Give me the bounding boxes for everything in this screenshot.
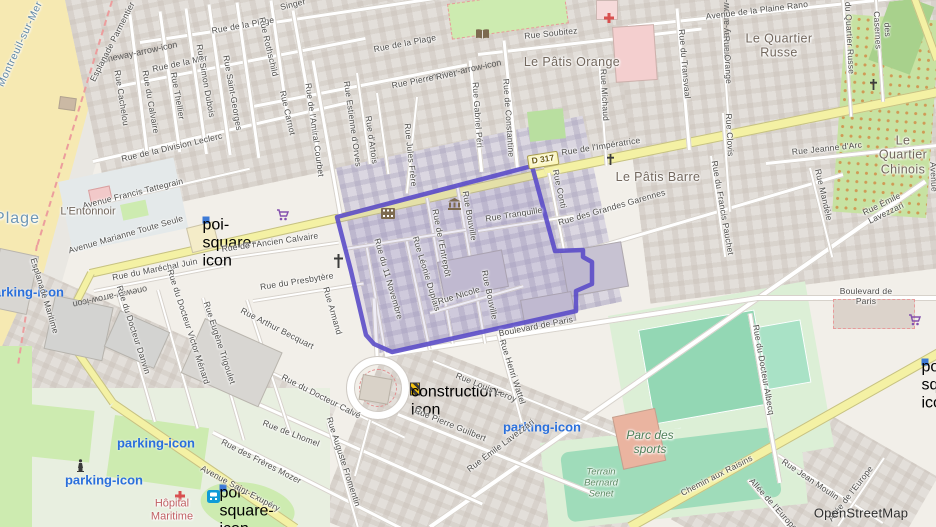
street-label-rue-des-casernes: des Casernes — [871, 3, 893, 58]
street-label-avenue-partial: Avenue — [927, 162, 936, 192]
attribution-attribution[interactable]: OpenStreetMap — [814, 507, 908, 522]
poi-square-icon: poi-square-icon — [922, 359, 929, 366]
street-label-rue-orange: Rue Orange — [721, 36, 733, 85]
roundabout-building — [358, 374, 392, 405]
parking-icon: parking-icon — [117, 436, 195, 451]
place-label-hopital-maritime: Hôpital Maritime — [151, 497, 193, 522]
place-label-le-quartier-russe: Le Quartier Russe — [746, 32, 813, 61]
place-label-plage: Plage — [0, 210, 40, 228]
green-strip — [0, 346, 32, 527]
square-green — [527, 108, 566, 142]
place-label-parc-des-sports: Parc des sports — [626, 429, 673, 457]
building — [612, 24, 658, 83]
place-label-terrain-bernard-senet: Terrain Bernard Senet — [584, 468, 618, 501]
place-label-le-patis-barre: Le Pâtis Barre — [616, 170, 701, 184]
building — [58, 96, 77, 111]
parking-icon: parking-icon — [0, 285, 64, 300]
poi-square-icon: poi-square-icon — [203, 217, 210, 224]
place-label-le-quartier-chinois: Le Quartier Chinois — [879, 133, 927, 176]
construction-icon: construction-icon — [410, 383, 420, 396]
parking-icon: parking-icon — [65, 473, 143, 488]
street-label-boulevard-de-paris-e: Boulevard de Paris — [831, 287, 901, 307]
place-label-l-entonnoir: L'Entonnoir — [60, 206, 115, 219]
street-label-rue-michaud: Rue Michaud — [598, 69, 610, 122]
street-label-rue-armand: Rue Armand — [321, 286, 344, 336]
osm-map-canvas[interactable]: parking-iconparking-iconparking-iconpark… — [0, 0, 936, 527]
place-label-le-patis-orange: Le Pâtis Orange — [524, 55, 620, 69]
street-label-rue-clovis: Rue Clovis — [723, 113, 735, 157]
